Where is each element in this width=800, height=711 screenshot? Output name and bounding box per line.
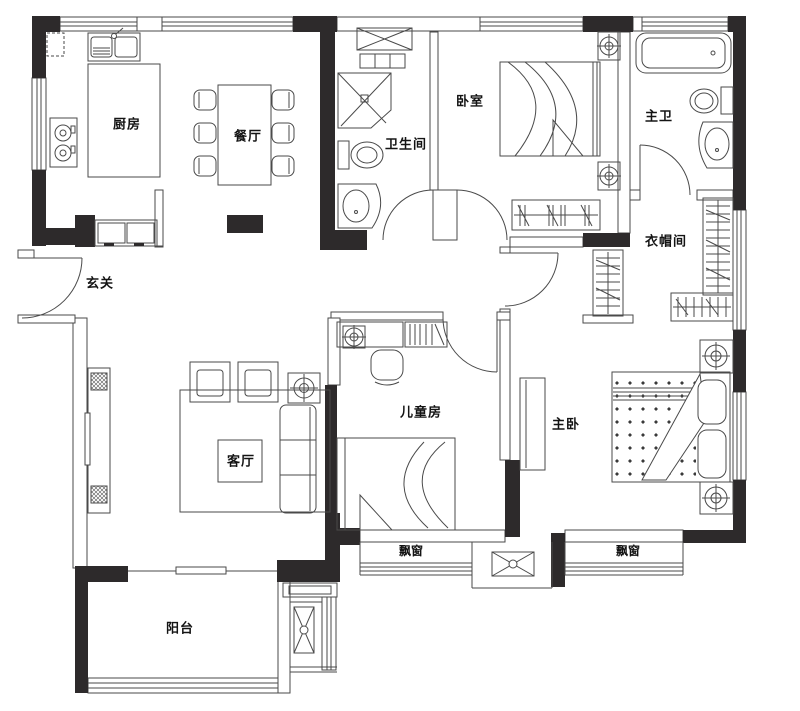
wardrobe-icon	[593, 198, 733, 321]
living-room-furniture	[85, 362, 330, 513]
washing-machine-icon	[294, 607, 314, 653]
kids-room-furniture	[337, 322, 455, 530]
room-label-master-bedroom: 主卧	[552, 418, 580, 431]
room-label-cloakroom: 衣帽间	[645, 235, 687, 248]
room-label-bedroom: 卧室	[456, 95, 484, 108]
floor-plan: 厨房 餐厅 卫生间 卧室 主卫 衣帽间 玄关 客厅 儿童房 主卧 飘窗 飘窗 阳…	[0, 0, 800, 711]
room-label-kitchen: 厨房	[113, 118, 141, 131]
room-label-bay-window-right: 飘窗	[616, 545, 640, 557]
bathroom-fixtures	[338, 28, 412, 228]
door-arc	[22, 145, 690, 372]
kitchen-fixtures	[47, 28, 160, 246]
room-label-living-room: 客厅	[227, 455, 255, 468]
floor-plan-drawing	[0, 0, 800, 711]
room-label-master-bathroom: 主卫	[645, 110, 673, 123]
room-label-dining: 餐厅	[234, 130, 262, 143]
room-label-bay-window-left: 飘窗	[399, 545, 423, 557]
ac-unit-icon	[472, 542, 552, 588]
room-label-entry: 玄关	[86, 277, 114, 290]
bedroom-furniture	[500, 32, 621, 230]
wall-lines	[95, 246, 337, 672]
room-label-bathroom: 卫生间	[385, 138, 427, 151]
master-bath-fixtures	[636, 33, 733, 168]
room-label-balcony: 阳台	[166, 622, 194, 635]
room-label-kids-room: 儿童房	[400, 406, 442, 419]
